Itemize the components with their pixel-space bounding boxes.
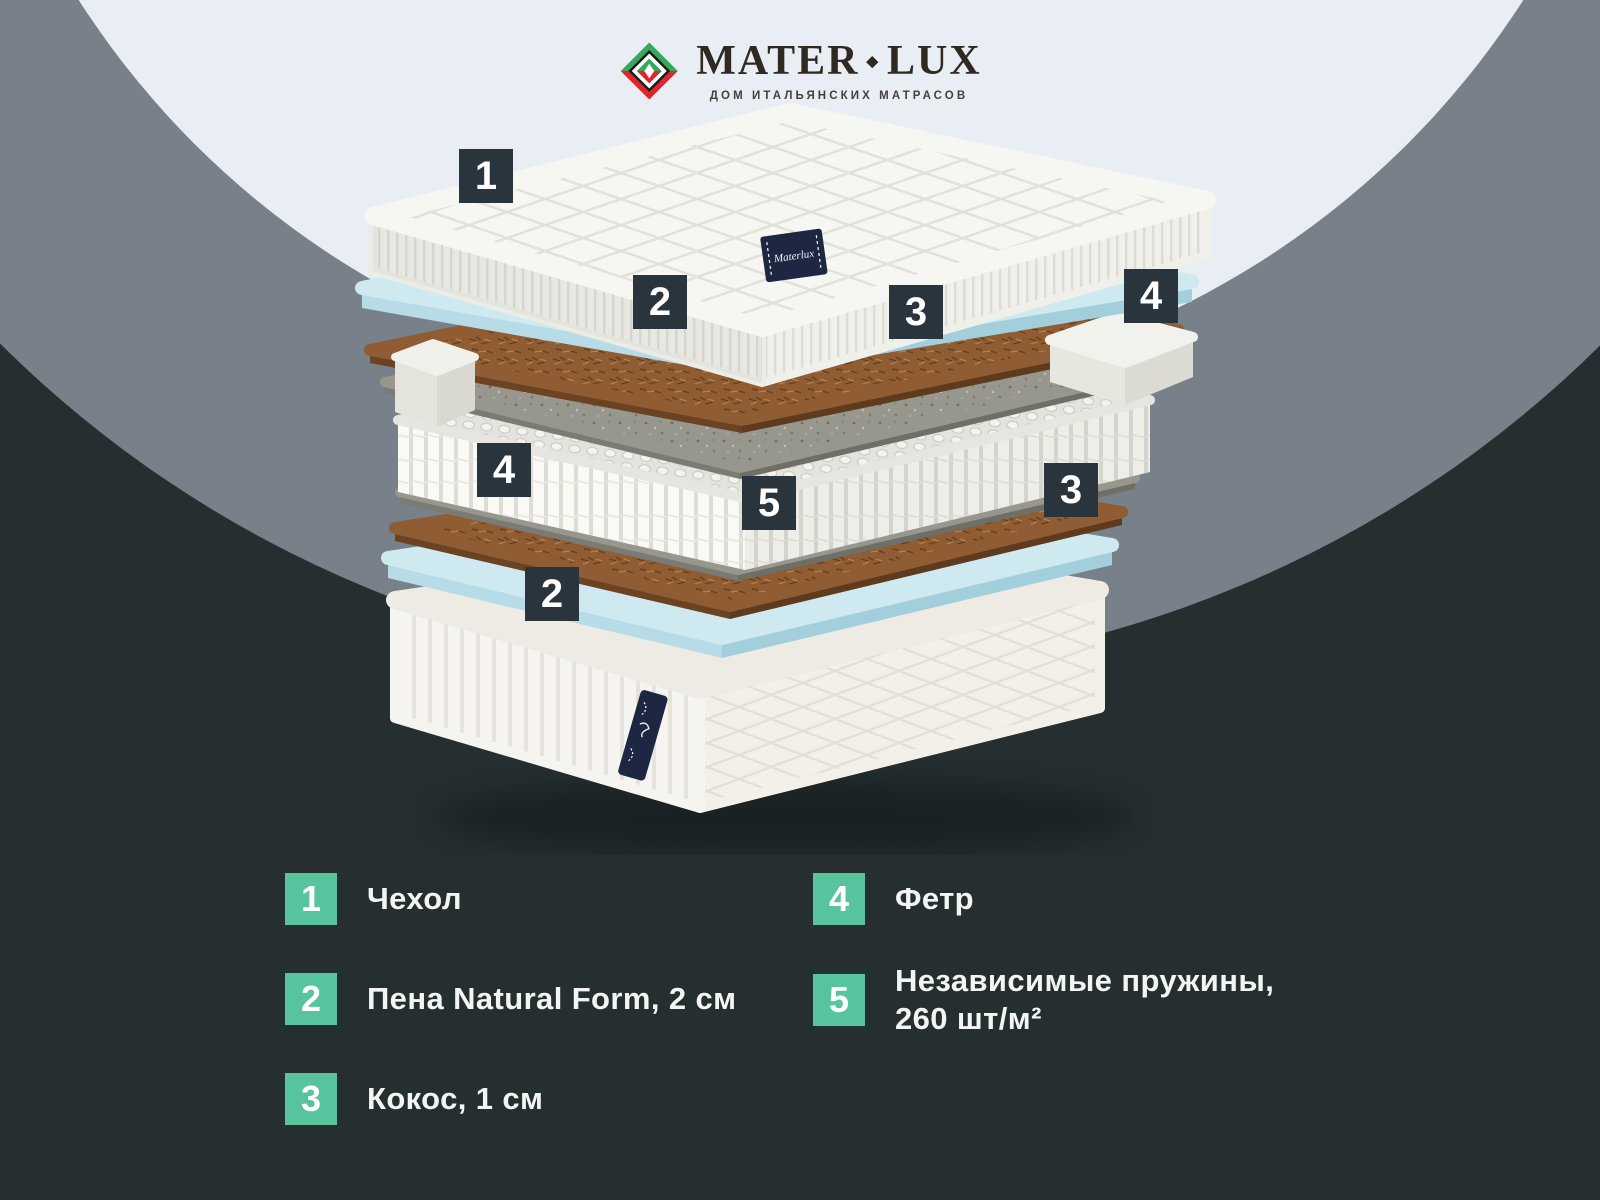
callout-number: 3 [1060, 470, 1082, 510]
legend-label: Чехол [367, 880, 462, 918]
legend-item-cover: 1 Чехол [285, 873, 462, 925]
callout-number: 3 [905, 292, 927, 332]
callout-badge-foam-bottom: 2 [525, 567, 579, 621]
callout-badge-cover: 1 [459, 149, 513, 203]
callout-badge-springs: 5 [742, 476, 796, 530]
legend-item-foam: 2 Пена Natural Form, 2 см [285, 973, 736, 1025]
legend-label: Фетр [895, 880, 974, 918]
callout-number: 4 [493, 450, 515, 490]
legend-item-felt: 4 Фетр [813, 873, 974, 925]
brand-name-right: LUX [887, 40, 982, 82]
legend-item-coir: 3 Кокос, 1 см [285, 1073, 543, 1125]
callout-badge-coir-bottom: 3 [1044, 463, 1098, 517]
legend-label: Независимые пружины, 260 шт/м² [895, 962, 1274, 1038]
callout-number: 1 [475, 156, 497, 196]
brand-name-separator-icon: ◆ [866, 55, 880, 70]
legend-label: Пена Natural Form, 2 см [367, 980, 736, 1018]
callout-badge-felt-top: 4 [1124, 269, 1178, 323]
callout-number: 2 [649, 282, 671, 322]
legend-num-badge: 2 [285, 973, 337, 1025]
legend-num-badge: 3 [285, 1073, 337, 1125]
brand-logo: MATER ◆ LUX ДОМ ИТАЛЬЯНСКИХ МАТРАСОВ [618, 40, 981, 102]
legend-item-springs: 5 Независимые пружины, 260 шт/м² [813, 962, 1274, 1038]
callout-number: 4 [1140, 276, 1162, 316]
callout-badge-coir-top: 3 [889, 285, 943, 339]
brand-name: MATER ◆ LUX [696, 40, 981, 82]
cover-label-tag: Materlux [760, 228, 828, 282]
legend-num-badge: 1 [285, 873, 337, 925]
brand-name-left: MATER [696, 40, 859, 82]
legend-num-badge: 5 [813, 974, 865, 1026]
legend-num-badge: 4 [813, 873, 865, 925]
callout-badge-felt-bottom: 4 [477, 443, 531, 497]
callout-number: 2 [541, 574, 563, 614]
springs-side-box-left [395, 343, 475, 427]
infographic-stage: MATER ◆ LUX ДОМ ИТАЛЬЯНСКИХ МАТРАСОВ [0, 0, 1600, 1200]
legend-label: Кокос, 1 см [367, 1080, 543, 1118]
callout-number: 5 [758, 483, 780, 523]
brand-logo-icon [618, 40, 680, 102]
callout-badge-foam-top: 2 [633, 275, 687, 329]
